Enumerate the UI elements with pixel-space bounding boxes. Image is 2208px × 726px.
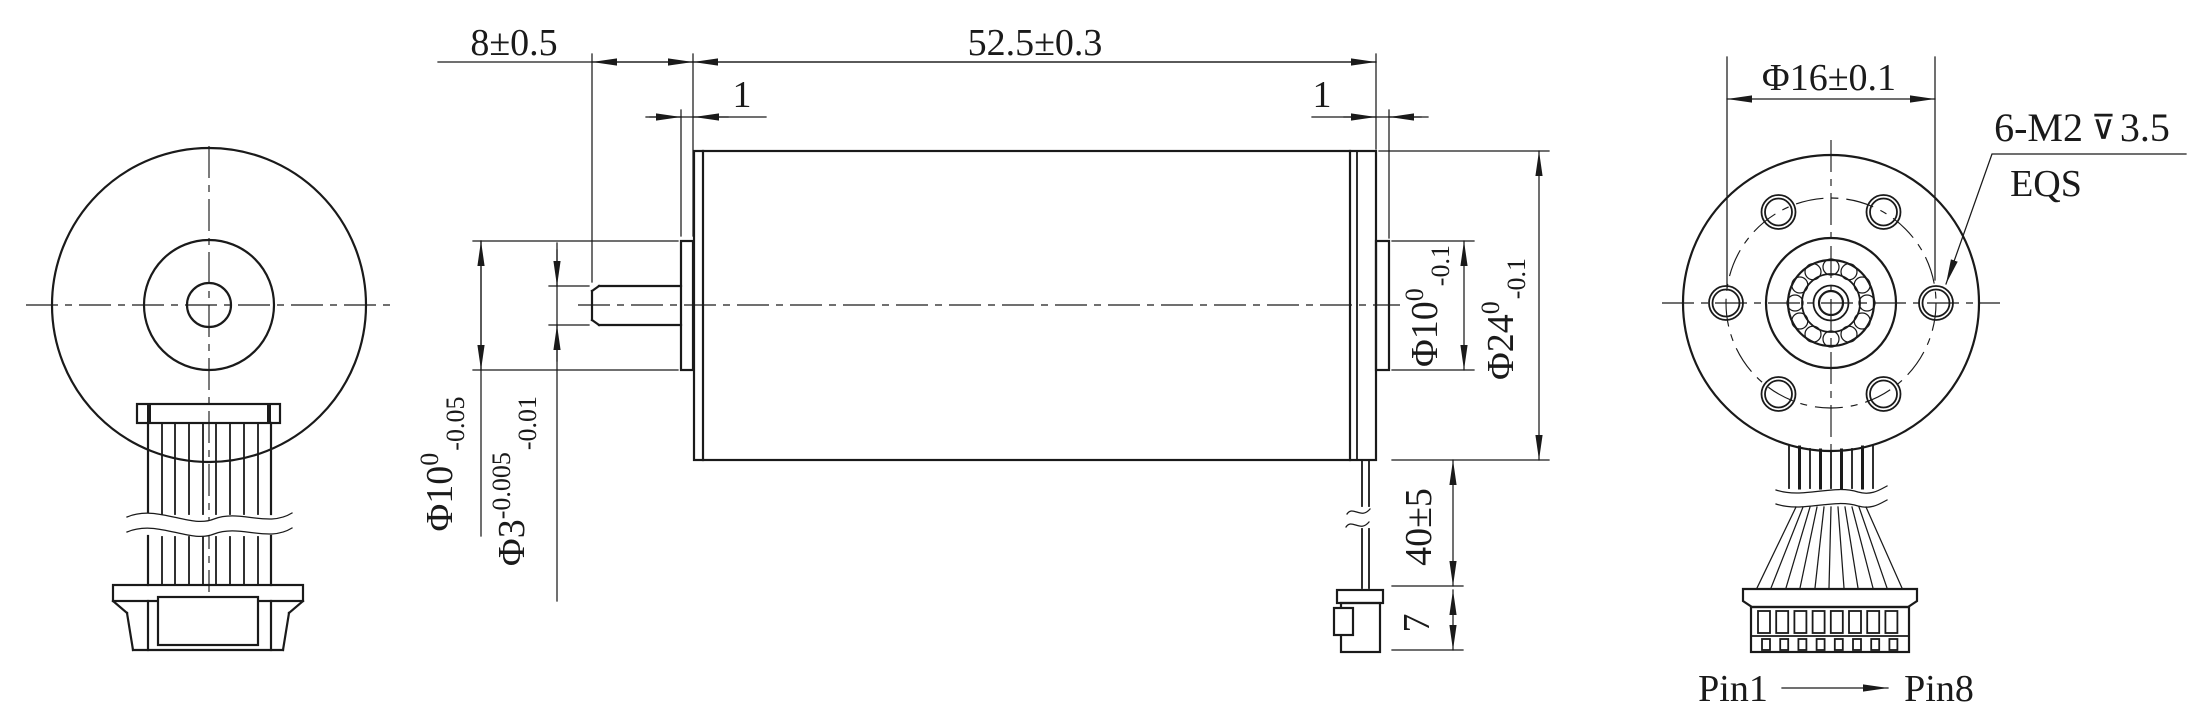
dim-shaft-dia: Φ3-0.005-0.01 [487, 243, 589, 601]
eqs-label: EQS [2010, 163, 2082, 205]
dim-body-dia-label: Φ240-0.1 [1476, 258, 1531, 380]
dim-lead-wire-length-label: 40±5 [1398, 488, 1440, 566]
bundle-break-symbol [1776, 486, 1887, 507]
wire-fan [1757, 507, 1902, 588]
rear-end-view: Φ16±0.1 6-M2⊽3.5 EQS Pin1 Pin8 [1662, 57, 2186, 710]
cable-break-symbol [127, 513, 292, 536]
wire-break-symbol [1346, 509, 1370, 527]
connector-8pin [1743, 589, 1917, 652]
connector-side-view [113, 585, 303, 650]
dim-bolt-circle-label: Φ16±0.1 [1762, 57, 1896, 99]
dim-rear-pilot: 1 [1312, 74, 1428, 238]
centerlines [1662, 140, 2000, 478]
wire-bundle [1757, 445, 1902, 588]
lead-wire [1346, 460, 1370, 588]
dim-body-length: 52.5±0.3 [693, 22, 1376, 149]
connector-teeth [1762, 639, 1897, 650]
dim-lead-wire-length: 40±5 [1392, 460, 1463, 586]
dim-rear-hub-dia-label: Φ100-0.1 [1400, 245, 1455, 367]
dim-front-pilot: 1 [646, 74, 766, 236]
dim-rear-pilot-label: 1 [1313, 74, 1332, 116]
dim-connector-height-label: 7 [1396, 614, 1438, 633]
pin-order-annotation: Pin1 Pin8 [1698, 668, 1974, 710]
dim-shaft-length-label: 8±0.5 [470, 22, 557, 64]
left-end-view [26, 146, 394, 650]
connector-slots [1758, 611, 1897, 633]
tapped-holes-note: 6-M2⊽3.5 EQS [1946, 105, 2186, 284]
pin1-label: Pin1 [1698, 668, 1768, 710]
ribbon-wires [162, 423, 258, 585]
tapped-holes-note-label: 6-M2⊽3.5 [1994, 105, 2170, 150]
dim-shaft-dia-label: Φ3-0.005-0.01 [487, 396, 542, 566]
dim-front-pilot-label: 1 [733, 74, 752, 116]
pin8-label: Pin8 [1904, 668, 1974, 710]
dim-connector-height: 7 [1392, 590, 1463, 650]
dim-body-length-label: 52.5±0.3 [968, 22, 1103, 64]
drawing-canvas: 8±0.5 52.5±0.3 1 1 Φ100-0.05 [0, 0, 2208, 726]
side-view: 8±0.5 52.5±0.3 1 1 Φ100-0.05 [415, 22, 1549, 652]
dim-rear-hub-dia: Φ100-0.1 [1392, 241, 1474, 370]
dim-front-hub-dia-label: Φ100-0.05 [415, 397, 470, 532]
inline-connector [1334, 590, 1383, 652]
